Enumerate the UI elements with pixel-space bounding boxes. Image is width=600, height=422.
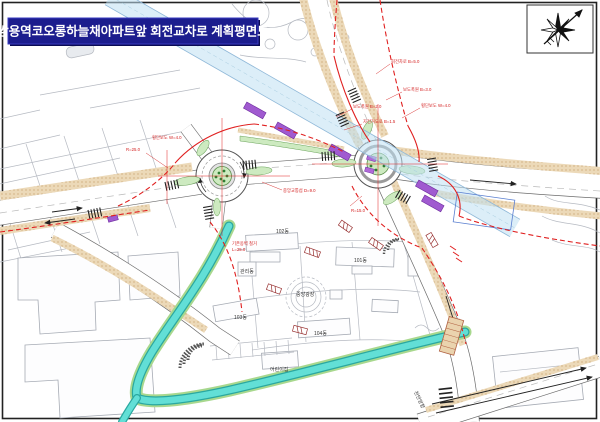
annotation-3: 자전거도로 B=1.5: [363, 118, 396, 125]
label-103: 103동: [234, 315, 247, 321]
annotation-8: 기존옹벽 철거: [232, 240, 257, 247]
label-daycare: 어린이집: [270, 366, 288, 373]
label-101: 101동: [354, 258, 367, 264]
label-104: 104동: [314, 331, 327, 337]
drawing-title: 쌍용역코오롱하늘채아파트앞 회전교차로 계획평면도: [0, 24, 269, 39]
annotation-0: R=25.0: [126, 147, 141, 152]
label-mgmt: 관리동: [240, 268, 254, 275]
annotation-5: 횡단보도 W=4.0: [421, 102, 451, 108]
annotation-6: 중앙교통섬 D=9.0: [283, 187, 316, 193]
plan-drawing-canvas: R=25.0 횡단보도 W=4.0 보도폭원 B=2.0 자전거도로 B=1.5…: [0, 0, 600, 422]
label-plaza: 중앙광장: [296, 291, 315, 298]
compass-icon: [527, 5, 593, 53]
annotation-2: 보도폭원 B=2.0: [353, 103, 382, 110]
annotation-7: R=15.0: [351, 208, 366, 213]
plan-drawing-svg: R=25.0 횡단보도 W=4.0 보도폭원 B=2.0 자전거도로 B=1.5…: [0, 0, 600, 422]
annotation-10: 회전차로 B=5.0: [391, 58, 420, 65]
title-box: 쌍용역코오롱하늘채아파트앞 회전교차로 계획평면도: [0, 18, 269, 46]
annotation-9: L=25.0: [232, 247, 246, 252]
annotation-1: 횡단보도 W=4.0: [152, 134, 182, 140]
annotation-4: 보도폭원 B=3.0: [403, 86, 432, 93]
label-102: 102동: [276, 229, 289, 235]
